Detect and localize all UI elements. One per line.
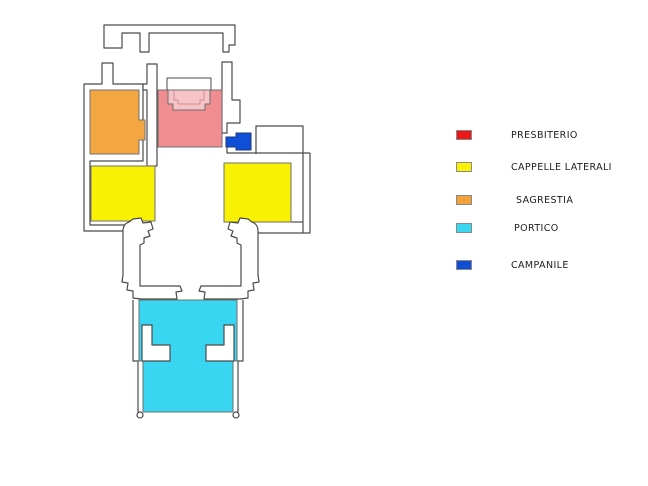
rear-wall-outline [104,25,235,52]
legend-label-sagrestia: SAGRESTIA [516,195,573,206]
legend-label-cappelle-laterali: CAPPELLE LATERALI [511,162,612,173]
cappelle-laterali-color-swatch [456,162,472,172]
legend-item-campanile: CAMPANILE [456,259,569,271]
campanile-color-swatch [456,260,472,270]
legend-label-presbiterio: PRESBITERIO [511,130,578,141]
legend-label-campanile: CAMPANILE [511,260,569,271]
portico-column-base-right [233,412,239,418]
right-chapel-region [224,163,291,222]
legend-item-portico: PORTICO [456,222,559,234]
vestibule-pier-left [122,218,182,299]
legend: PRESBITERIO CAPPELLE LATERALI SAGRESTIA … [456,0,646,486]
legend-item-sagrestia: SAGRESTIA [456,194,573,206]
left-chapel-region [91,166,155,221]
portico-color-swatch [456,223,472,233]
portico-column-base-left [137,412,143,418]
legend-label-portico: PORTICO [514,223,559,234]
campanile-region [226,133,251,150]
portico-outer-wall-right [238,300,243,414]
portico-outer-wall-left [133,300,138,414]
apse-outer-rect [167,78,211,90]
nave-right-wall [222,62,240,133]
vestibule-pier-right [199,218,259,299]
legend-item-cappelle-laterali: CAPPELLE LATERALI [456,161,612,173]
legend-item-presbiterio: PRESBITERIO [456,129,578,141]
floorplan-page: PRESBITERIO CAPPELLE LATERALI SAGRESTIA … [0,0,648,486]
presbiterio-color-swatch [456,130,472,140]
sagrestia-region [90,90,145,154]
sagrestia-color-swatch [456,195,472,205]
nave-left-wall [143,64,157,166]
